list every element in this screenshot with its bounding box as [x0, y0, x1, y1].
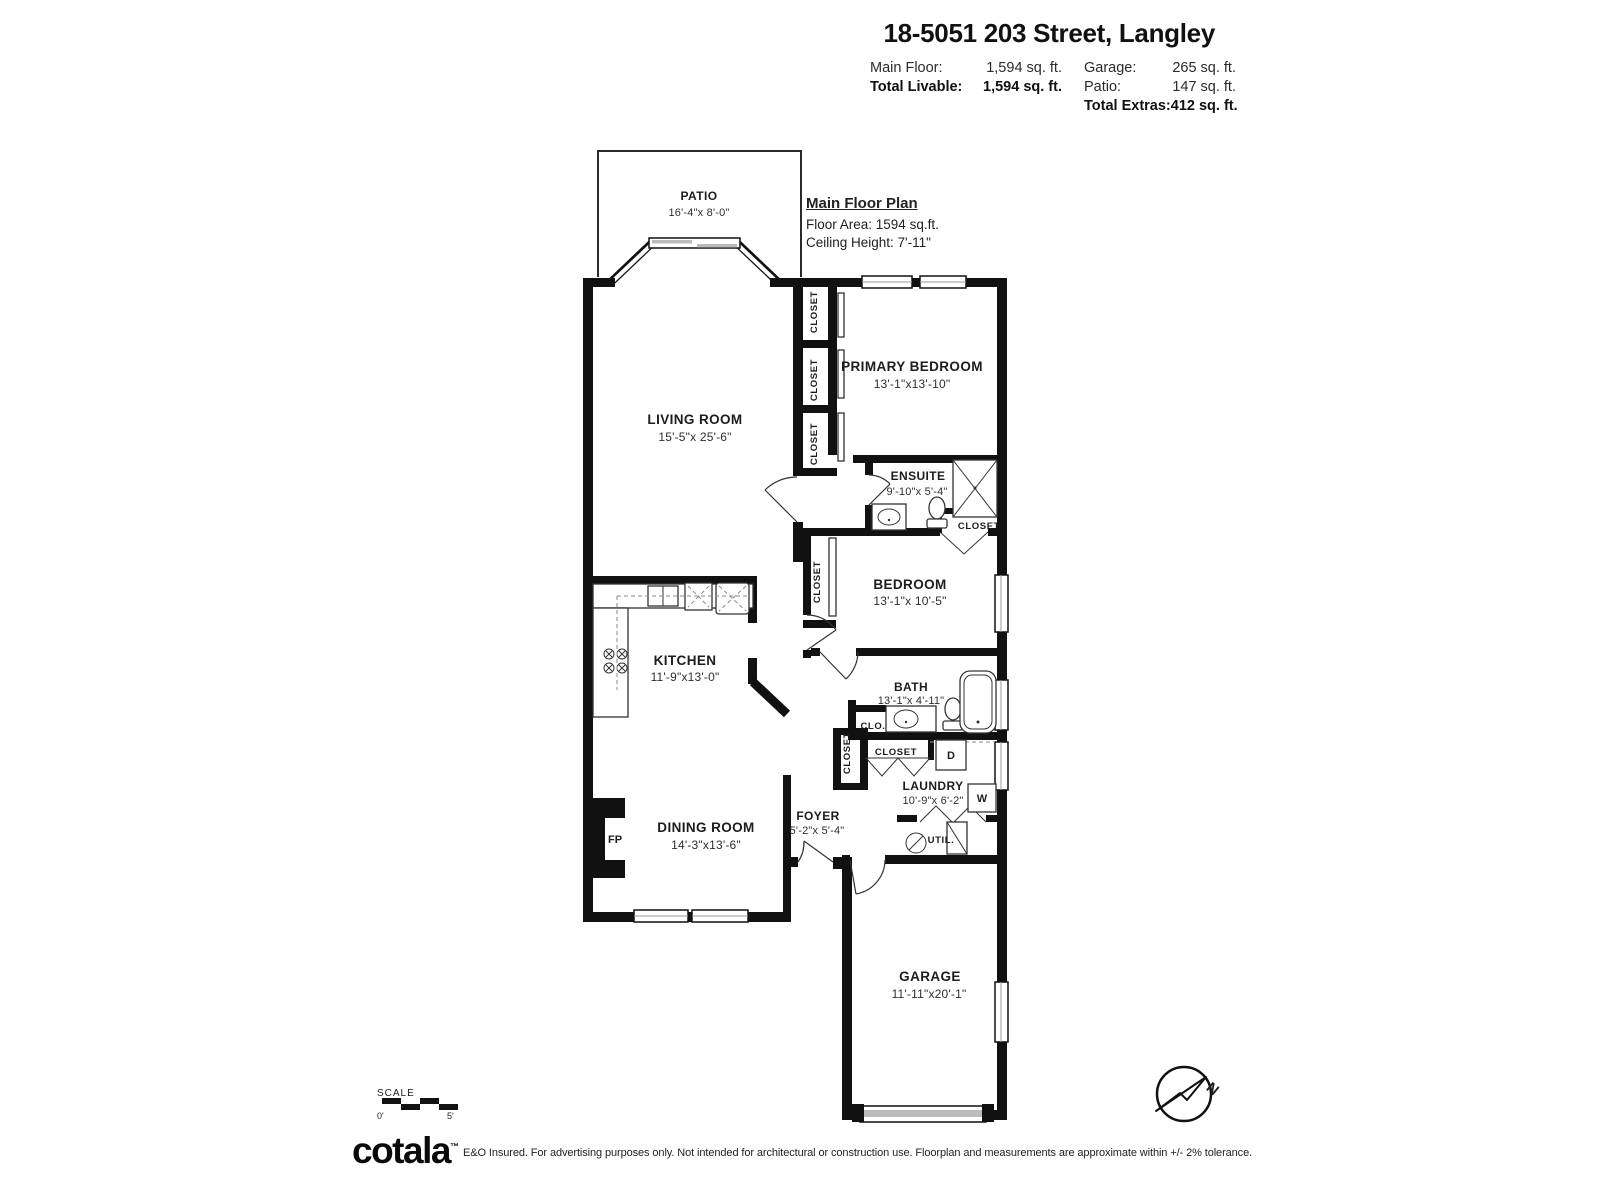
floorplan-page: 18-5051 203 Street, Langley Main Floor: …: [0, 0, 1600, 1200]
kitchen-name: KITCHEN: [654, 653, 717, 668]
laundry-name: LAUNDRY: [902, 779, 963, 793]
bath-door-arc: [846, 652, 858, 679]
scale-start: 0': [377, 1111, 384, 1121]
ensuite-dims: 9'-10"x 5'-4": [886, 486, 947, 498]
patio-slider-panel: [652, 240, 692, 244]
primary-name: PRIMARY BEDROOM: [841, 359, 983, 374]
washer-label: W: [977, 793, 988, 805]
hall-closet1-label: CLOSET: [809, 291, 820, 333]
ensuite-door-arc: [869, 475, 890, 484]
laundry-dims: 10'-9"x 6'-2": [902, 795, 963, 807]
ensuite-vanity: [872, 504, 906, 530]
dining-name: DINING ROOM: [657, 820, 754, 835]
patio-slider-panel: [697, 244, 737, 248]
bath-dims: 13'-1"x 4'-11": [878, 695, 945, 707]
brand-name: cotala: [352, 1130, 450, 1171]
disclaimer-text: E&O Insured. For advertising purposes on…: [463, 1147, 1252, 1159]
living-dims: 15'-5"x 25'-6": [658, 430, 731, 444]
foyer-dims: 5'-2"x 5'-4": [790, 825, 845, 837]
foyer-closet-label: CLOSET: [842, 732, 853, 774]
ensuite-closet-label: CLOSET: [958, 521, 1000, 532]
bedroom-dims: 13'-1"x 10'-5": [873, 594, 946, 608]
fireplace-label: FP: [608, 834, 622, 846]
trademark-symbol: ™: [450, 1142, 459, 1152]
bedroom-closet-label: CLOSET: [812, 561, 823, 603]
garage-entry-door-arc: [856, 860, 885, 894]
compass: N: [1156, 1067, 1222, 1121]
front-door-arc: [798, 841, 804, 862]
living-name: LIVING ROOM: [647, 412, 742, 427]
scale-end: 5': [447, 1111, 454, 1121]
patio-dims: 16'-4"x 8'-0": [668, 207, 729, 219]
bath-toilet: [945, 698, 961, 720]
primary-dims: 13'-1"x13'-10": [874, 377, 951, 391]
ensuite-toilet: [929, 497, 945, 519]
hall-closet2-label: CLOSET: [809, 359, 820, 401]
kitchen-counter-left: [593, 608, 628, 717]
bathtub: [960, 671, 996, 733]
floorplan-drawing: SCALE 0' 5' N PATIO 16'-4"x 8'-0" LIVING…: [0, 0, 1600, 1200]
north-arrow-icon: [1156, 1077, 1206, 1111]
garage-dims: 11'-11"x20'-1": [892, 987, 967, 1001]
bath-name: BATH: [894, 680, 928, 694]
garage-name: GARAGE: [899, 969, 961, 984]
bedroom-name: BEDROOM: [873, 577, 946, 592]
kitchen-fixtures: [593, 583, 753, 717]
bay-window: [611, 238, 778, 282]
compass-north-label: N: [1203, 1079, 1222, 1099]
foyer-name: FOYER: [796, 809, 839, 823]
scale-label: SCALE: [377, 1088, 415, 1099]
clo-label: CLO.: [860, 721, 885, 732]
util-label: UTIL.: [928, 835, 955, 846]
laundry-closet-label: CLOSET: [875, 747, 917, 758]
dryer-label: D: [947, 750, 955, 762]
dining-dims: 14'-3"x13'-6": [671, 838, 741, 852]
ensuite-name: ENSUITE: [891, 469, 946, 483]
brand-logo: cotala™: [352, 1130, 459, 1172]
hall-closet3-label: CLOSET: [809, 423, 820, 465]
patio-name: PATIO: [681, 189, 718, 203]
kitchen-dims: 11'-9"x13'-0": [651, 670, 720, 684]
hall-door-arc: [765, 477, 797, 490]
scale-indicator: SCALE 0' 5': [377, 1088, 458, 1121]
garage-door: [852, 1104, 994, 1122]
